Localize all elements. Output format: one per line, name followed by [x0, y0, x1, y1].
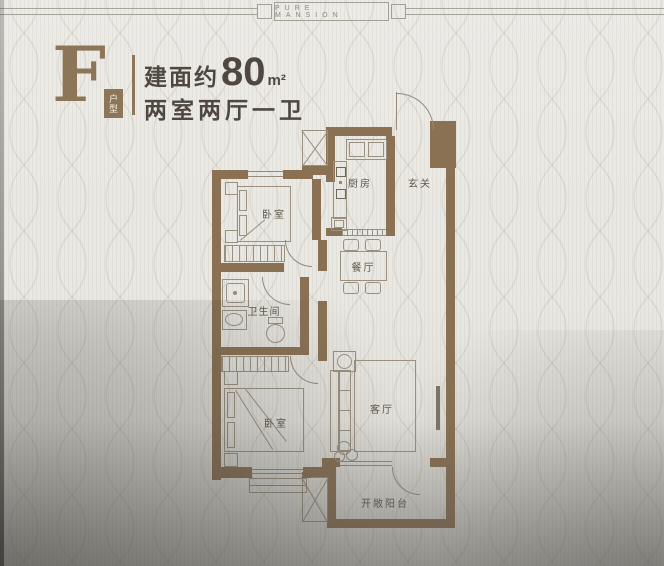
wall	[212, 170, 221, 480]
kitchen-appliance-inner	[334, 220, 344, 228]
dining-table: 餐厅	[340, 251, 387, 281]
banner-ornament-right	[391, 4, 406, 19]
wall	[212, 263, 284, 272]
wall	[302, 166, 328, 175]
pillow	[227, 422, 235, 448]
room-label-living: 客厅	[362, 402, 402, 415]
pillow	[239, 190, 247, 211]
wall	[446, 166, 455, 470]
area-prefix: 建面约	[144, 58, 219, 92]
bay-window-line	[249, 485, 307, 486]
wall	[446, 470, 455, 528]
wall	[386, 136, 395, 236]
nightstand	[224, 371, 238, 385]
floorplan-poster-photo: PURE MANSION F 户型 建面约 80 m² 两室两厅一卫	[0, 0, 664, 566]
banner-plaque: PURE MANSION	[274, 2, 389, 21]
plant	[346, 449, 358, 461]
room-label-entry: 玄关	[398, 176, 442, 189]
dining-chair	[365, 239, 381, 251]
wardrobe-1	[224, 245, 285, 262]
wall	[302, 472, 311, 478]
plan-type-badge-text: 户型	[107, 94, 120, 114]
window	[248, 176, 283, 177]
dining-chair	[343, 282, 359, 294]
dining-chair	[343, 239, 359, 251]
toilet-bowl	[266, 324, 285, 343]
window	[252, 473, 303, 474]
kitchen-sliding-door	[342, 229, 386, 236]
room-label-kitchen: 厨房	[338, 176, 382, 189]
wall	[327, 519, 455, 528]
plant	[337, 354, 352, 369]
wall	[312, 179, 321, 240]
room-label-bedroom-2: 卧室	[254, 416, 298, 429]
kitchen-sink-basin	[368, 142, 384, 157]
banner-line-right-2	[406, 14, 664, 15]
banner-line-right	[406, 8, 664, 9]
window	[248, 171, 283, 172]
room-label-dining: 餐厅	[352, 259, 376, 274]
room-label-bathroom: 卫生间	[236, 304, 292, 316]
dining-chair	[365, 282, 381, 294]
balcony-sill	[340, 465, 392, 466]
plan-type-badge: 户型	[104, 89, 123, 118]
stove-burner	[336, 189, 346, 199]
pillow	[239, 215, 247, 236]
layout-description: 两室两厅一卫	[144, 91, 306, 125]
sofa-cushions	[339, 370, 351, 452]
wall	[212, 347, 309, 355]
kitchen-sink-basin	[349, 142, 365, 157]
toilet-tank	[268, 317, 283, 324]
area-value: 80	[221, 50, 266, 95]
wall	[212, 170, 248, 179]
banner-ornament-left	[257, 4, 272, 19]
wall	[318, 240, 327, 271]
area-unit: m²	[268, 72, 286, 89]
wall	[212, 467, 252, 478]
brand-text: PURE MANSION	[275, 5, 388, 19]
wall	[327, 458, 336, 528]
sofa-back	[330, 370, 339, 452]
wall	[326, 127, 392, 136]
window	[252, 469, 303, 470]
balcony-sill	[340, 461, 392, 462]
wall	[318, 301, 327, 361]
area-line: 建面约 80 m²	[144, 50, 286, 95]
wall	[300, 277, 309, 347]
plant	[334, 451, 345, 462]
header-divider	[132, 55, 135, 115]
wardrobe-2	[221, 356, 289, 372]
banner-line-left-2	[0, 14, 257, 15]
pillow	[227, 392, 235, 418]
room-label-balcony: 开敞阳台	[352, 496, 418, 509]
tv	[436, 386, 440, 430]
shower-drain	[233, 291, 237, 295]
wall	[430, 458, 455, 467]
nightstand	[224, 453, 238, 467]
room-label-bedroom-1: 卧室	[252, 207, 296, 220]
banner-line-left	[0, 8, 257, 9]
